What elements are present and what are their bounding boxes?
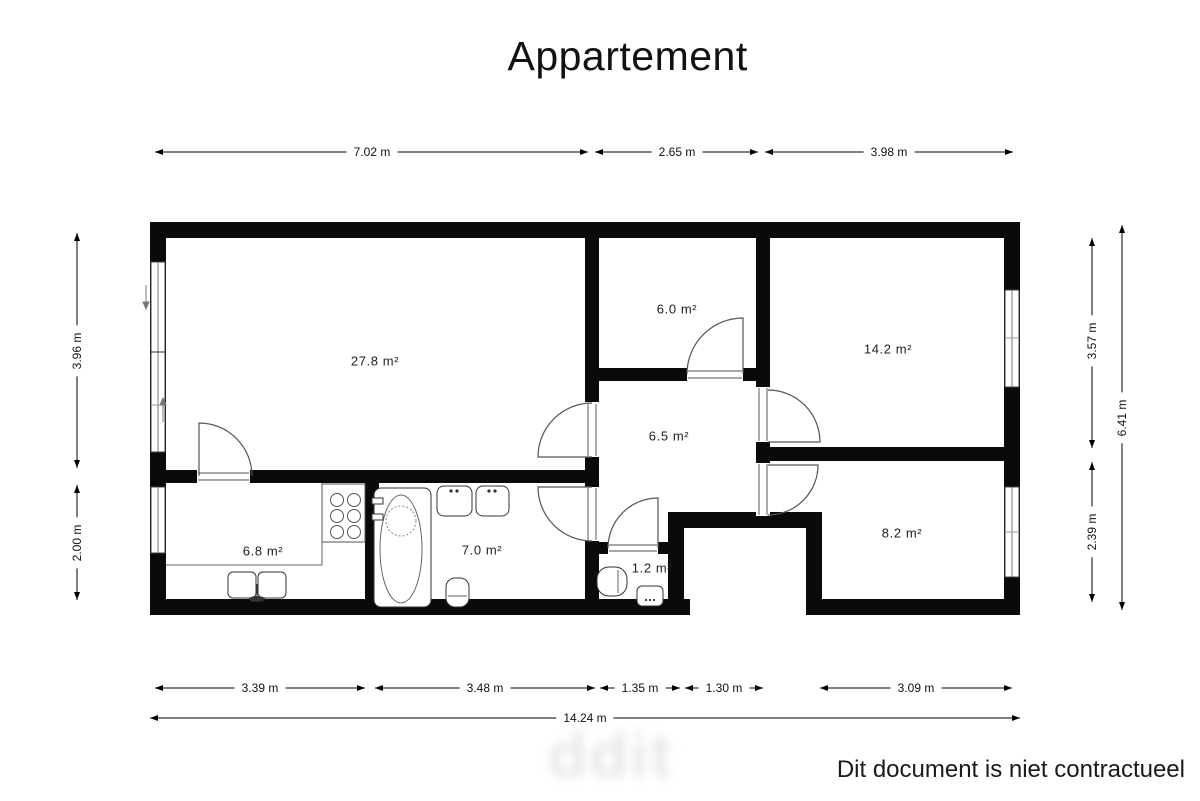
watermark: ddit <box>548 718 673 792</box>
threshold-wc-door <box>608 542 658 554</box>
dim-top-1: 7.02 m <box>347 145 398 159</box>
dim-bottom-5: 3.09 m <box>891 681 942 695</box>
threshold-bedroom-top-door <box>756 387 770 442</box>
dim-bottom-4: 1.30 m <box>699 681 750 695</box>
door-living-to-hallway <box>538 403 592 457</box>
kitchen-sink-icon <box>228 572 286 602</box>
room-label-kitchen: 6.8 m² <box>243 544 283 559</box>
dim-bottom-3: 1.35 m <box>615 681 666 695</box>
door-hallway-to-storage <box>687 318 743 374</box>
dim-bottom-total: 14.24 m <box>556 711 613 725</box>
dim-left-1: 3.96 m <box>70 326 84 377</box>
window-bedroom-bottom <box>1005 487 1019 577</box>
dim-bottom-1: 3.39 m <box>235 681 286 695</box>
door-hallway-to-bathroom <box>538 487 592 541</box>
bathtub-icon <box>372 488 431 607</box>
room-label-living: 27.8 m² <box>351 354 399 369</box>
dim-left-2: 2.00 m <box>70 518 84 569</box>
door-hallway-to-bedroom-top <box>768 390 820 442</box>
room-label-bedroom-top: 14.2 m² <box>864 342 912 357</box>
washbasin-wc-icon <box>637 586 663 606</box>
threshold-bedroom-bottom-door <box>756 463 770 516</box>
window-living <box>151 262 165 452</box>
room-label-storage: 6.0 m² <box>657 302 697 317</box>
dim-right-1: 3.57 m <box>1085 316 1099 367</box>
room-label-wc: 1.2 m² <box>632 561 672 576</box>
window-bedroom-top <box>1005 290 1019 387</box>
washbasin-icon <box>437 486 509 516</box>
dim-top-2: 2.65 m <box>652 145 703 159</box>
disclaimer-text: Dit document is niet contractueel <box>837 756 1185 784</box>
floor-plan-page: ddit Appartement 27.8 m² 6.0 m² 14.2 m² … <box>0 0 1200 801</box>
room-label-bedroom-bottom: 8.2 m² <box>882 526 922 541</box>
room-label-bathroom: 7.0 m² <box>462 543 502 558</box>
threshold-living-door <box>585 403 599 457</box>
door-hallway-to-wc <box>608 498 658 548</box>
dim-right-total: 6.41 m <box>1115 393 1129 444</box>
threshold-kitchen-door <box>197 470 250 483</box>
toilet-bathroom-icon <box>446 578 469 607</box>
floor-plan-drawing <box>0 0 1200 801</box>
dim-right-2: 2.39 m <box>1085 507 1099 558</box>
toilet-wc-icon <box>597 567 627 596</box>
room-label-hallway: 6.5 m² <box>649 429 689 444</box>
door-living-to-kitchen <box>199 423 252 476</box>
dim-bottom-2: 3.48 m <box>460 681 511 695</box>
dim-top-3: 3.98 m <box>864 145 915 159</box>
page-title: Appartement <box>507 33 747 80</box>
stove-icon <box>322 484 365 542</box>
threshold-bathroom-door <box>585 487 599 541</box>
door-hallway-to-bedroom-bottom <box>768 465 818 515</box>
window-kitchen <box>151 487 165 553</box>
threshold-storage-door <box>687 368 743 381</box>
